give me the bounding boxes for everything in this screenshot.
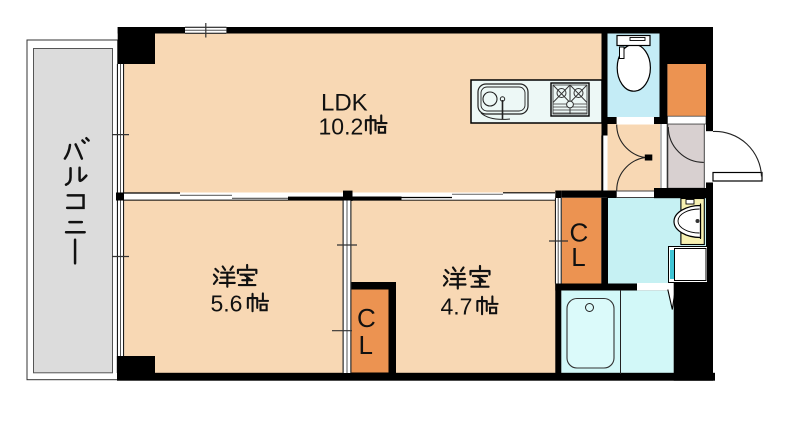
svg-text:4.7: 4.7	[441, 294, 473, 320]
svg-text:L: L	[359, 330, 373, 360]
svg-text:C: C	[357, 303, 376, 333]
svg-text:10.2: 10.2	[319, 114, 364, 140]
svg-text:L: L	[571, 242, 585, 272]
svg-text:LDK: LDK	[321, 90, 368, 117]
svg-text:5.6: 5.6	[211, 291, 243, 317]
